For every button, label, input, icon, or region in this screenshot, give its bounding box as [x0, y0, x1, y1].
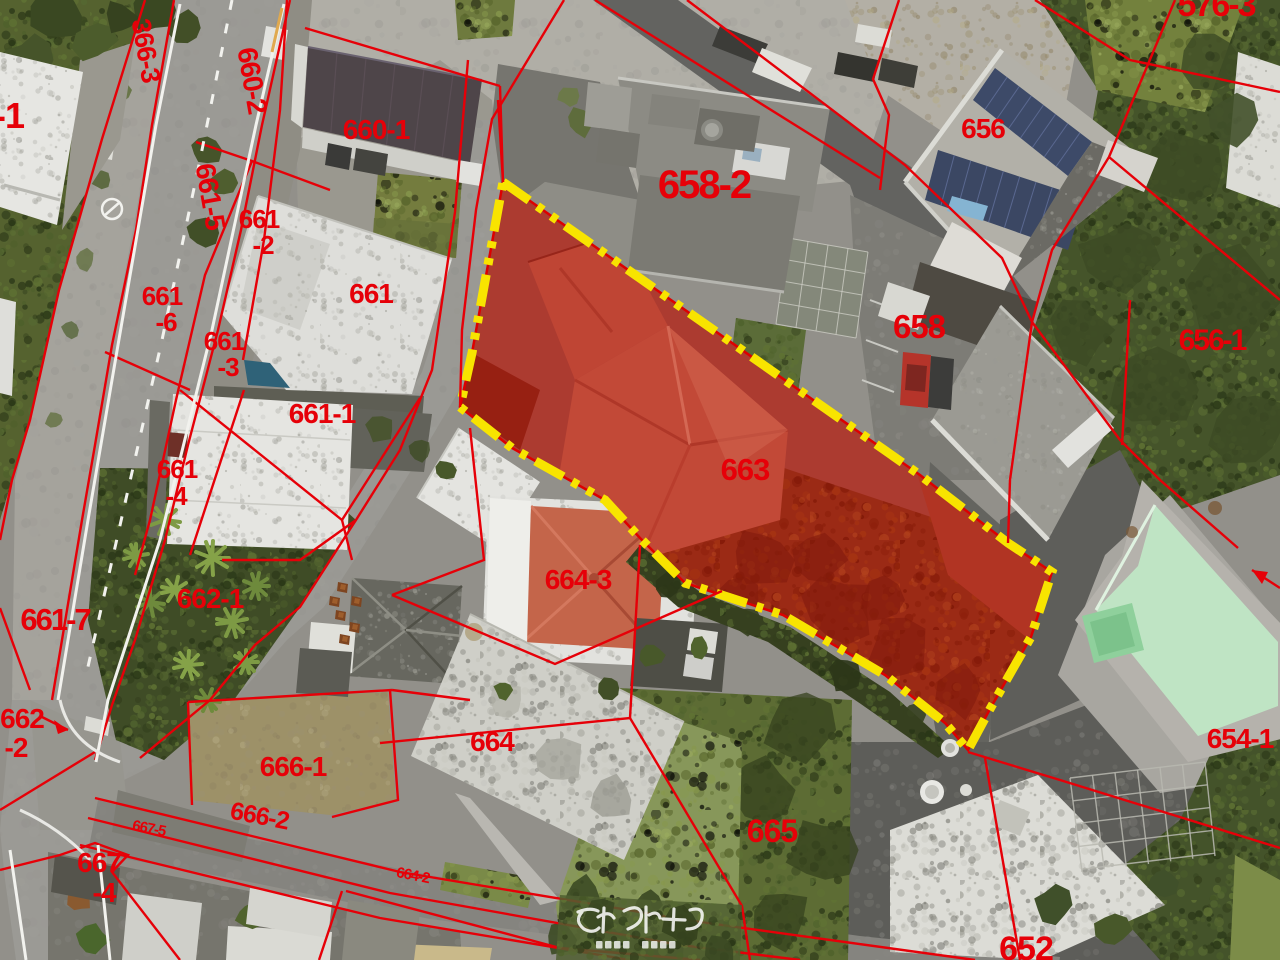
svg-text:665: 665 [747, 813, 798, 849]
svg-text:666-1: 666-1 [260, 751, 327, 782]
svg-text:-6: -6 [155, 307, 177, 337]
svg-text:663: 663 [721, 452, 770, 487]
svg-text:-4: -4 [93, 877, 117, 908]
svg-text:660-1: 660-1 [343, 114, 410, 145]
svg-text:576-3: 576-3 [1178, 0, 1256, 24]
svg-text:661: 661 [349, 278, 393, 309]
svg-text:661-1: 661-1 [289, 398, 356, 429]
svg-text:-1: -1 [0, 95, 25, 136]
svg-text:652: 652 [999, 930, 1053, 960]
svg-text:656-1: 656-1 [1179, 324, 1247, 357]
svg-text:664-3: 664-3 [545, 564, 612, 595]
svg-text:656: 656 [961, 113, 1005, 144]
svg-text:661-7: 661-7 [20, 602, 90, 637]
svg-text:661: 661 [157, 454, 198, 484]
svg-text:667: 667 [77, 847, 121, 878]
svg-text:-2: -2 [5, 732, 28, 763]
svg-text:-3: -3 [217, 352, 239, 382]
svg-text:654-1: 654-1 [1207, 723, 1274, 754]
svg-text:658-2: 658-2 [658, 163, 751, 207]
svg-text:662: 662 [0, 703, 44, 734]
svg-text:662-1: 662-1 [177, 583, 244, 614]
svg-text:664: 664 [470, 726, 515, 757]
svg-text:-2: -2 [252, 230, 274, 260]
svg-text:658: 658 [893, 308, 946, 345]
svg-text:-4: -4 [165, 481, 188, 511]
